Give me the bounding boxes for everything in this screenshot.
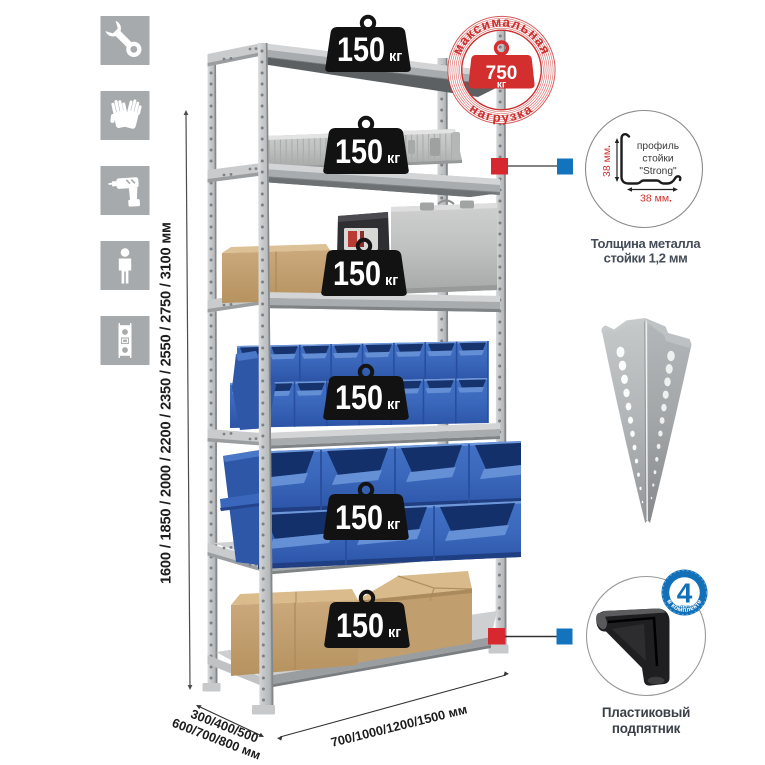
svg-text:Пластиковый: Пластиковый — [602, 705, 690, 720]
svg-text:1600 / 1850 / 2000 / 2200 / 23: 1600 / 1850 / 2000 / 2200 / 2350 / 2550 … — [159, 222, 175, 584]
svg-text:кг: кг — [388, 625, 401, 641]
svg-text:Толщина металла: Толщина металла — [591, 236, 702, 251]
svg-text:кг: кг — [497, 80, 506, 91]
svg-text:38 мм.: 38 мм. — [601, 145, 613, 177]
svg-text:кг: кг — [387, 151, 400, 167]
svg-text:кг: кг — [385, 273, 398, 289]
svg-text:38 мм.: 38 мм. — [640, 193, 672, 205]
svg-text:стойки: стойки — [642, 154, 673, 165]
svg-text:150: 150 — [335, 379, 383, 417]
svg-text:150: 150 — [336, 607, 384, 645]
svg-text:150: 150 — [335, 499, 383, 537]
svg-text:"Strong": "Strong" — [639, 166, 677, 177]
svg-text:150: 150 — [337, 31, 385, 69]
svg-text:кг: кг — [387, 517, 400, 533]
svg-text:кг: кг — [389, 49, 402, 65]
svg-text:150: 150 — [333, 255, 381, 293]
svg-text:150: 150 — [335, 133, 383, 171]
svg-text:700/1000/1200/1500 мм: 700/1000/1200/1500 мм — [329, 701, 468, 749]
svg-text:кг: кг — [387, 397, 400, 413]
svg-text:стойки 1,2 мм: стойки 1,2 мм — [604, 251, 688, 266]
svg-text:профиль: профиль — [637, 140, 679, 152]
svg-text:подпятник: подпятник — [612, 721, 681, 736]
